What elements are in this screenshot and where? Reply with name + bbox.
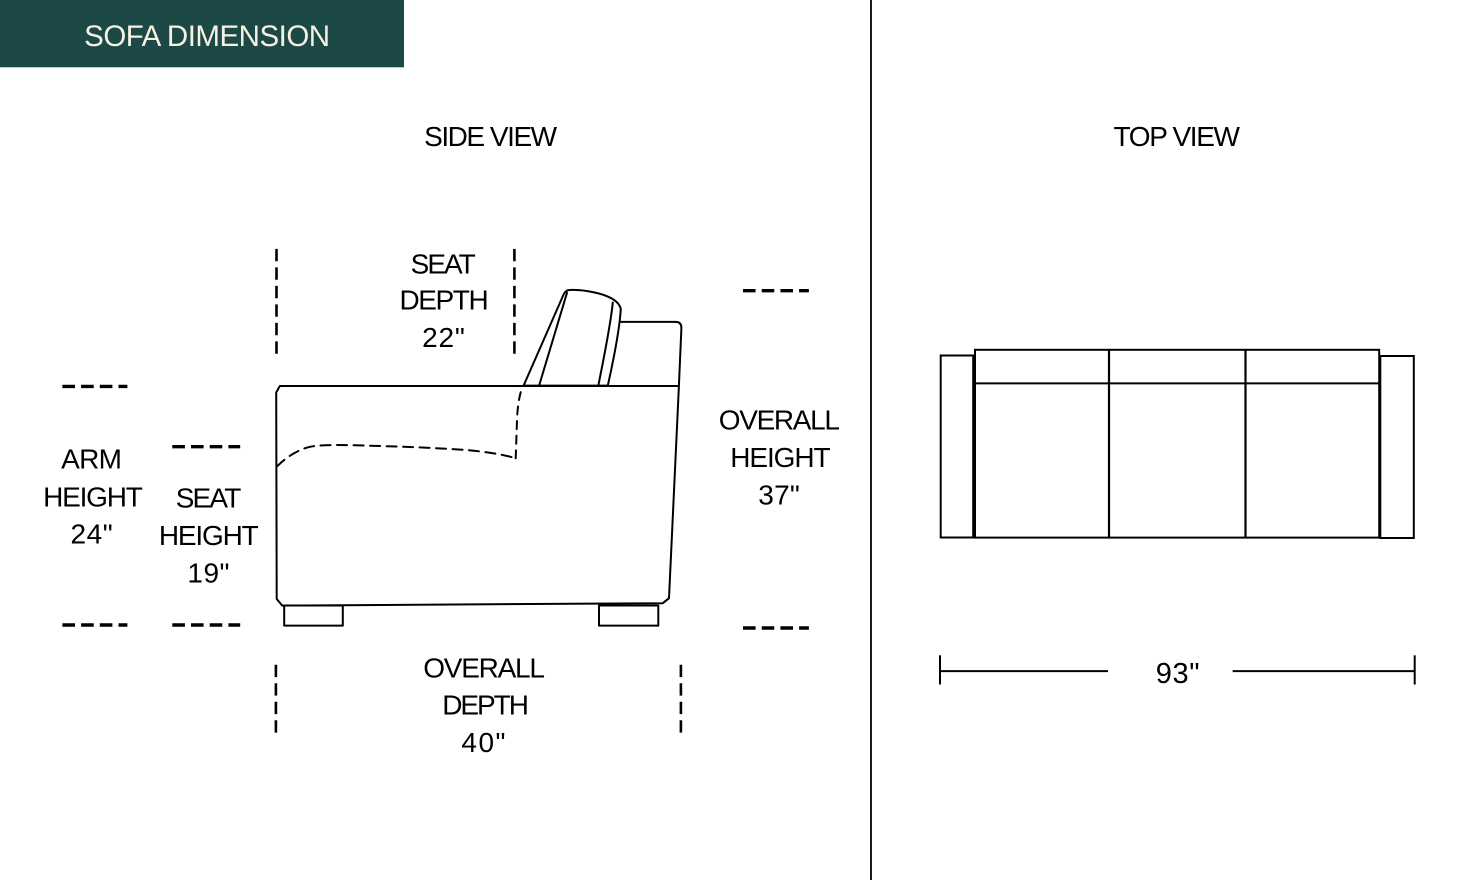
svg-text:93": 93" xyxy=(1156,658,1200,690)
svg-text:HEIGHT: HEIGHT xyxy=(730,442,830,473)
svg-text:OVERALL: OVERALL xyxy=(423,652,544,683)
svg-text:SIDE VIEW: SIDE VIEW xyxy=(424,121,558,152)
svg-text:ARM: ARM xyxy=(61,444,121,475)
svg-text:22": 22" xyxy=(422,322,465,353)
svg-text:TOP VIEW: TOP VIEW xyxy=(1114,121,1241,152)
svg-text:OVERALL: OVERALL xyxy=(719,404,840,435)
svg-text:DEPTH: DEPTH xyxy=(399,284,487,315)
svg-text:HEIGHT: HEIGHT xyxy=(159,520,259,551)
svg-text:SEAT: SEAT xyxy=(176,482,241,513)
svg-text:40": 40" xyxy=(461,727,507,758)
svg-text:24": 24" xyxy=(70,519,113,550)
svg-text:DEPTH: DEPTH xyxy=(442,689,527,720)
svg-text:37": 37" xyxy=(758,479,800,510)
svg-text:19": 19" xyxy=(187,557,230,588)
svg-text:SOFA DIMENSION: SOFA DIMENSION xyxy=(84,20,329,53)
svg-text:HEIGHT: HEIGHT xyxy=(43,481,143,512)
svg-text:SEAT: SEAT xyxy=(411,249,476,280)
